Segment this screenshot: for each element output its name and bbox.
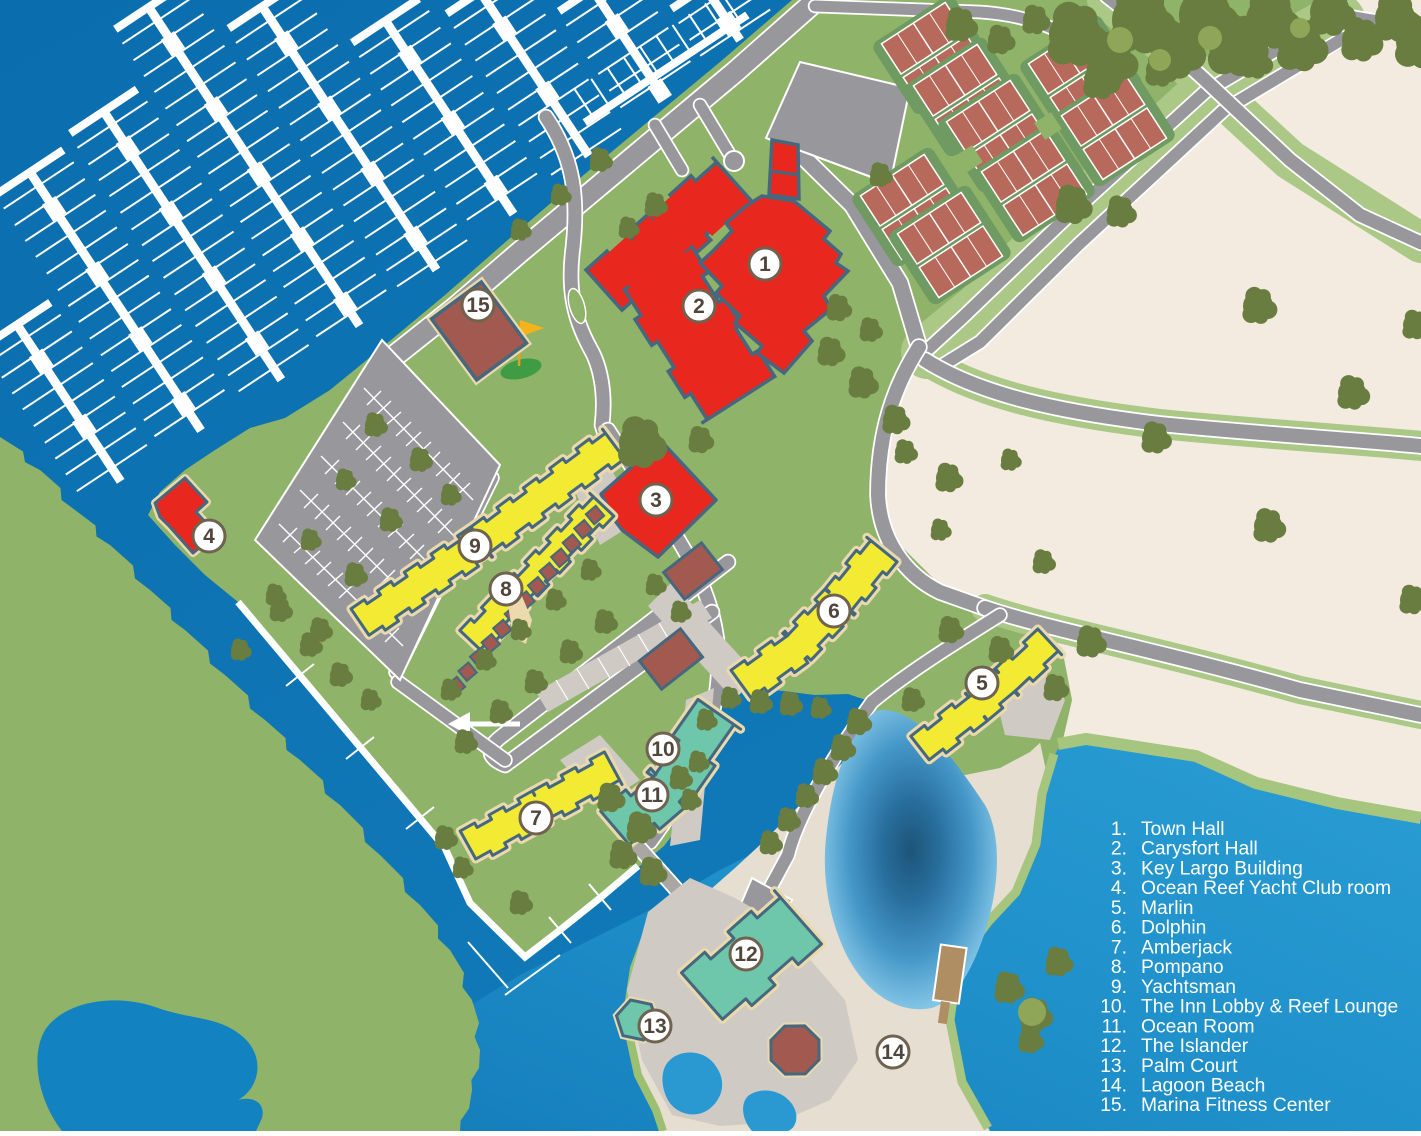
svg-text:Ocean Room: Ocean Room <box>1141 1016 1255 1037</box>
svg-text:15.: 15. <box>1100 1095 1127 1116</box>
svg-text:10.: 10. <box>1100 997 1127 1018</box>
svg-text:6.: 6. <box>1111 918 1127 939</box>
svg-text:5.: 5. <box>1111 898 1127 919</box>
svg-text:15: 15 <box>466 294 490 317</box>
svg-text:10: 10 <box>651 738 674 761</box>
svg-text:2: 2 <box>693 295 705 318</box>
svg-text:Yachtsman: Yachtsman <box>1141 977 1236 998</box>
svg-text:Town Hall: Town Hall <box>1141 819 1225 840</box>
svg-text:3: 3 <box>650 489 662 512</box>
svg-text:12.: 12. <box>1100 1036 1127 1057</box>
svg-text:8: 8 <box>500 578 512 601</box>
svg-text:6: 6 <box>828 600 840 623</box>
svg-text:11: 11 <box>641 784 664 807</box>
svg-text:Lagoon Beach: Lagoon Beach <box>1141 1076 1265 1097</box>
svg-text:7.: 7. <box>1111 937 1127 958</box>
svg-text:2.: 2. <box>1111 839 1127 860</box>
svg-text:3.: 3. <box>1111 859 1127 880</box>
svg-text:14: 14 <box>881 1041 905 1064</box>
svg-text:9: 9 <box>469 535 481 558</box>
svg-text:9.: 9. <box>1111 977 1127 998</box>
svg-text:12: 12 <box>734 943 757 966</box>
svg-text:13: 13 <box>643 1015 666 1038</box>
svg-text:7: 7 <box>530 807 542 830</box>
svg-text:Ocean Reef Yacht Club room: Ocean Reef Yacht Club room <box>1141 878 1391 899</box>
svg-text:The Islander: The Islander <box>1141 1036 1249 1057</box>
svg-text:11.: 11. <box>1102 1016 1127 1037</box>
svg-text:The Inn Lobby & Reef Lounge: The Inn Lobby & Reef Lounge <box>1141 997 1398 1018</box>
svg-text:Carysfort Hall: Carysfort Hall <box>1141 839 1258 860</box>
svg-text:Pompano: Pompano <box>1141 957 1224 978</box>
svg-text:Palm Court: Palm Court <box>1141 1056 1238 1077</box>
svg-text:1.: 1. <box>1111 819 1127 840</box>
svg-text:14.: 14. <box>1100 1076 1127 1097</box>
svg-text:13.: 13. <box>1100 1056 1127 1077</box>
svg-text:Key Largo Building: Key Largo Building <box>1141 859 1303 880</box>
svg-text:Amberjack: Amberjack <box>1141 937 1232 958</box>
svg-text:4.: 4. <box>1111 878 1127 899</box>
svg-text:Dolphin: Dolphin <box>1141 918 1206 939</box>
svg-text:5: 5 <box>976 672 988 695</box>
svg-text:1: 1 <box>759 253 771 276</box>
svg-text:Marina Fitness Center: Marina Fitness Center <box>1141 1095 1331 1116</box>
svg-text:Marlin: Marlin <box>1141 898 1194 919</box>
svg-text:8.: 8. <box>1111 957 1127 978</box>
svg-text:4: 4 <box>203 525 215 548</box>
